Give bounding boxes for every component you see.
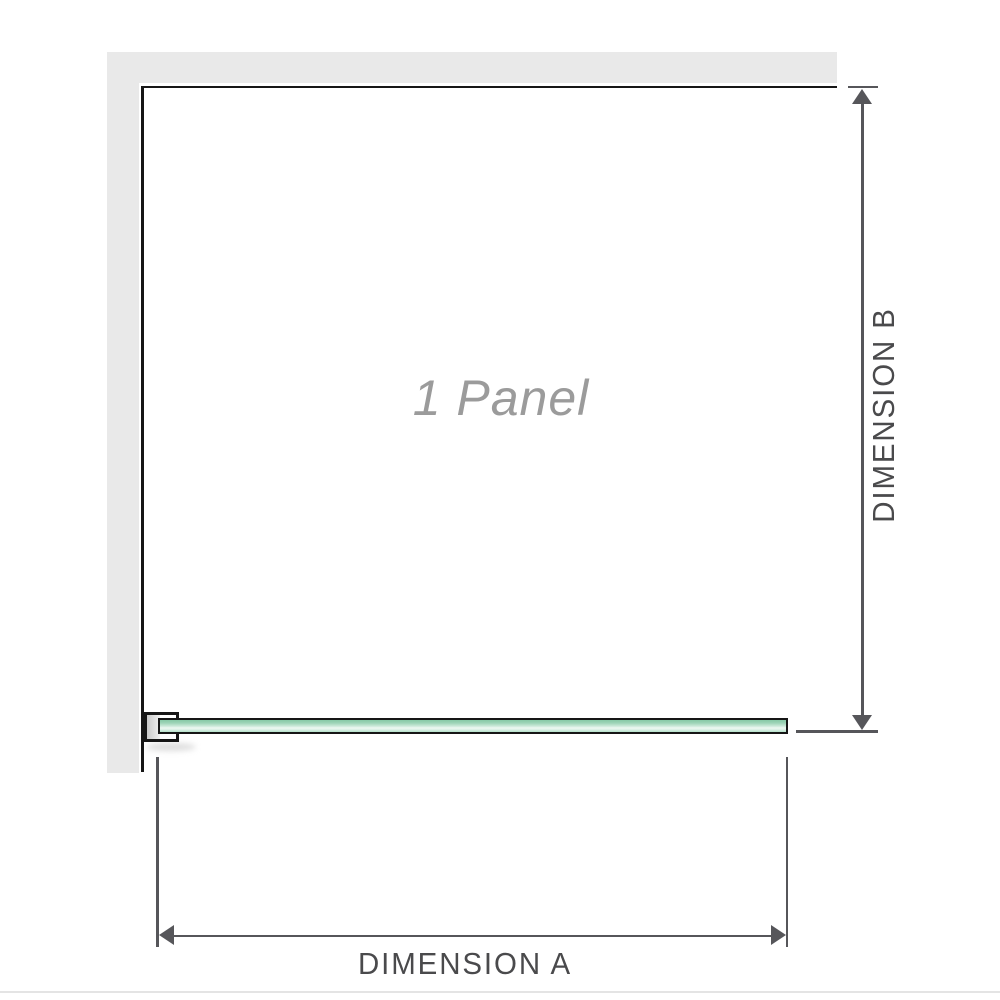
arrowhead-left-icon <box>159 925 174 945</box>
dimension-a-label: DIMENSION A <box>358 946 572 982</box>
bracket-shadow <box>146 743 196 751</box>
arrowhead-up-icon <box>852 89 872 104</box>
wall-left-segment <box>107 52 139 773</box>
dimension-a-left-extension-line <box>156 757 159 947</box>
dimension-b-label: DIMENSION B <box>866 307 902 523</box>
wall-inner-edge-vertical-line <box>141 86 144 772</box>
dimension-a-right-extension-line <box>786 757 789 947</box>
panel-count-label: 1 Panel <box>413 369 590 427</box>
wall-top-segment <box>107 52 837 83</box>
panel-dimension-diagram: 1 Panel DIMENSION B DIMENSION A <box>0 0 1000 1000</box>
arrowhead-right-icon <box>771 925 786 945</box>
dimension-a-line <box>168 935 776 938</box>
glass-panel-bar <box>158 718 788 734</box>
wall-inner-edge-horizontal-line <box>141 86 837 89</box>
dimension-b-line <box>861 95 864 722</box>
bottom-rule-line <box>0 991 1000 993</box>
arrowhead-down-icon <box>852 715 872 730</box>
dimension-b-bottom-tick <box>796 730 878 733</box>
